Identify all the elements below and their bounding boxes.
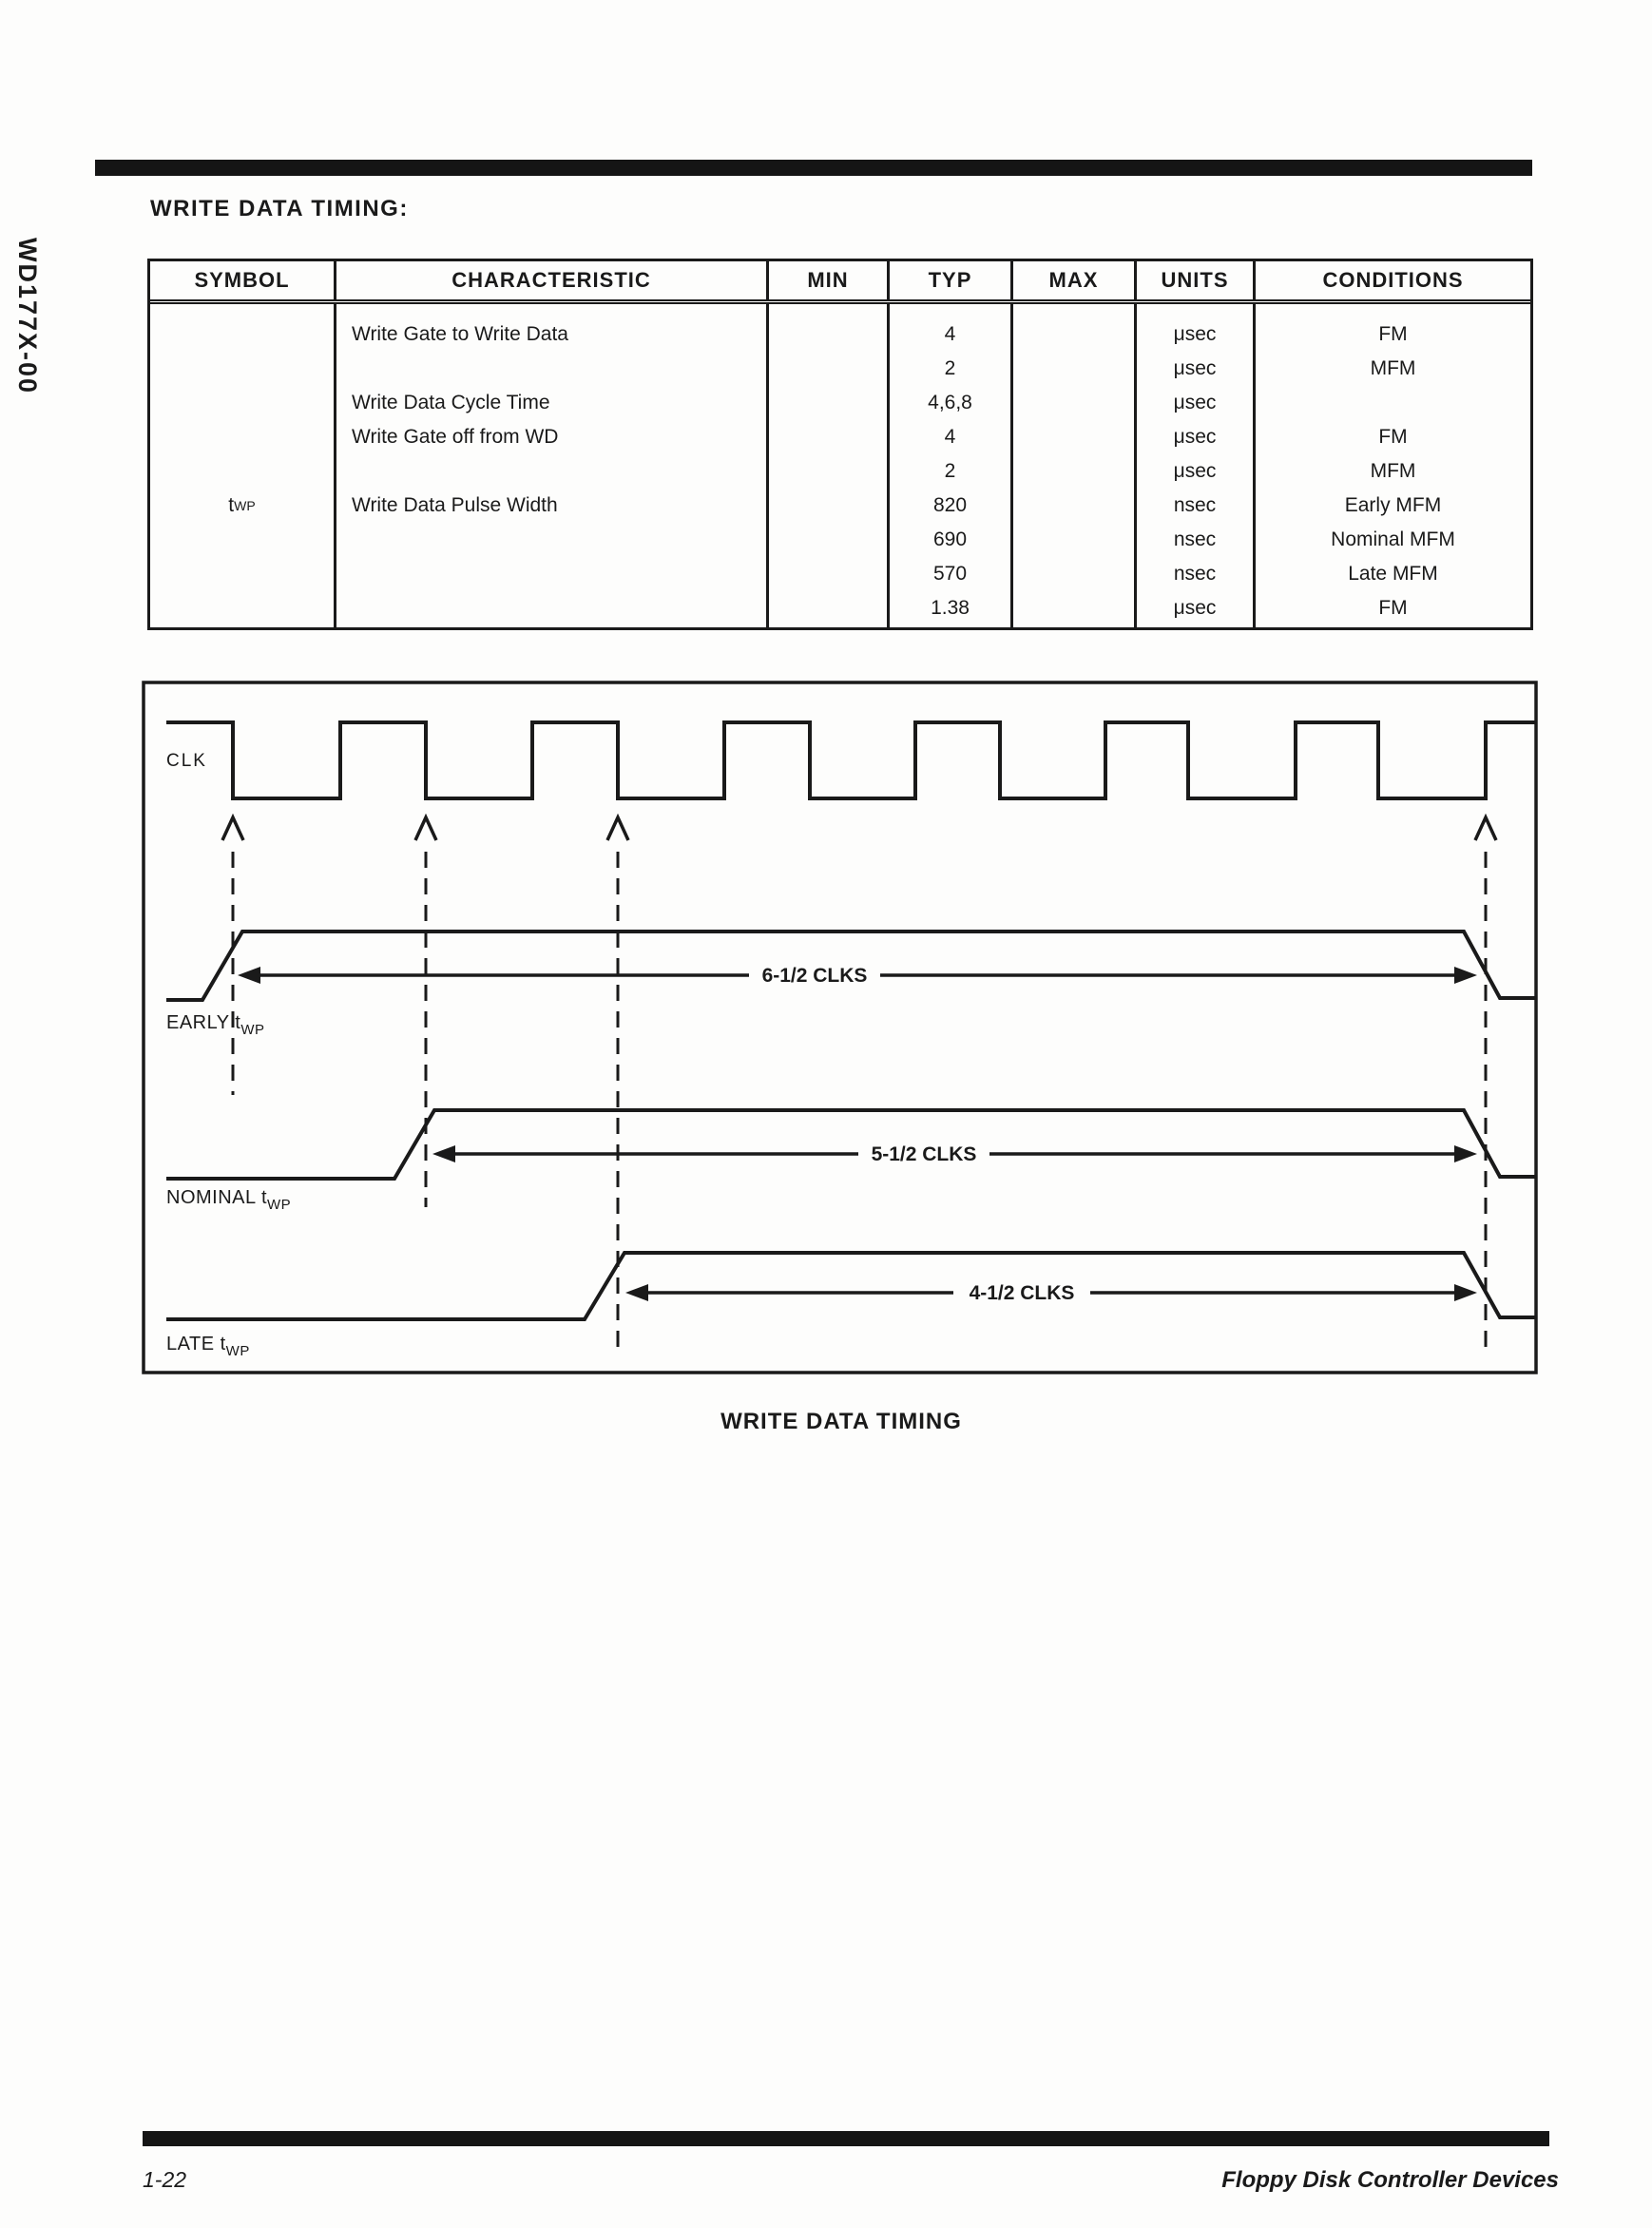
table-cell: μsec <box>1137 420 1253 454</box>
table-cell <box>769 317 887 352</box>
table-cell <box>1013 454 1134 489</box>
nominal-duration-label: 5-1/2 CLKS <box>872 1143 977 1165</box>
clock-sample-caret <box>222 817 243 840</box>
table-cell: μsec <box>1137 591 1253 625</box>
table-cell <box>150 317 334 352</box>
table-cell: nsec <box>1137 489 1253 523</box>
table-cell: FM <box>1256 317 1530 352</box>
column-min <box>766 304 887 627</box>
label-prefix: NOMINAL t <box>166 1187 267 1208</box>
table-cell <box>1013 352 1134 386</box>
table-cell: Late MFM <box>1256 557 1530 591</box>
table-cell <box>336 591 766 625</box>
clk-label: CLK <box>166 751 207 771</box>
table-body: tWP Write Gate to Write Data Write Data … <box>150 304 1530 627</box>
table-cell <box>150 557 334 591</box>
footer-title: Floppy Disk Controller Devices <box>1221 2167 1559 2194</box>
table-cell: nsec <box>1137 557 1253 591</box>
table-cell <box>769 352 887 386</box>
table-cell <box>336 557 766 591</box>
arrowhead-right <box>1454 1145 1477 1162</box>
table-cell: FM <box>1256 420 1530 454</box>
table-cell: Write Gate to Write Data <box>336 317 766 352</box>
table-cell <box>769 489 887 523</box>
label-prefix: LATE t <box>166 1334 226 1354</box>
table-cell: 2 <box>890 454 1010 489</box>
clock-sample-caret <box>1475 817 1496 840</box>
table-cell: μsec <box>1137 317 1253 352</box>
late-duration-label: 4-1/2 CLKS <box>970 1282 1075 1304</box>
table-cell: 690 <box>890 523 1010 557</box>
arrowhead-right <box>1454 967 1477 984</box>
table-cell <box>769 591 887 625</box>
table-cell <box>336 523 766 557</box>
table-cell <box>1013 420 1134 454</box>
arrowhead-left <box>432 1145 455 1162</box>
header-max: MAX <box>1010 261 1134 299</box>
table-cell-symbol-twp: tWP <box>150 489 334 523</box>
table-cell: 4 <box>890 317 1010 352</box>
side-device-label: WD177X-00 <box>12 238 42 394</box>
table-cell: 1.38 <box>890 591 1010 625</box>
header-conditions: CONDITIONS <box>1253 261 1530 299</box>
table-cell <box>769 454 887 489</box>
table-cell: μsec <box>1137 386 1253 420</box>
table-cell: 820 <box>890 489 1010 523</box>
table-header-row: SYMBOL CHARACTERISTIC MIN TYP MAX UNITS … <box>150 261 1530 304</box>
table-cell <box>150 454 334 489</box>
table-cell <box>1013 523 1134 557</box>
table-cell <box>769 420 887 454</box>
table-cell: FM <box>1256 591 1530 625</box>
table-cell: MFM <box>1256 352 1530 386</box>
column-units: μsec μsec μsec μsec μsec nsec nsec nsec … <box>1134 304 1253 627</box>
clock-sample-caret <box>607 817 628 840</box>
clock-sample-caret <box>415 817 436 840</box>
top-rule <box>95 160 1532 176</box>
table-cell: Write Data Cycle Time <box>336 386 766 420</box>
table-cell <box>1013 557 1134 591</box>
bottom-rule <box>143 2131 1549 2146</box>
column-characteristic: Write Gate to Write Data Write Data Cycl… <box>334 304 766 627</box>
arrowhead-right <box>1454 1284 1477 1301</box>
column-typ: 4 2 4,6,8 4 2 820 690 570 1.38 <box>887 304 1010 627</box>
header-typ: TYP <box>887 261 1010 299</box>
table-cell: μsec <box>1137 454 1253 489</box>
label-subscript: WP <box>240 1022 264 1038</box>
header-units: UNITS <box>1134 261 1253 299</box>
column-symbol: tWP <box>150 304 334 627</box>
table-cell <box>150 352 334 386</box>
label-subscript: WP <box>226 1343 250 1359</box>
late-twp-label: LATE tWP <box>166 1334 250 1359</box>
table-cell: nsec <box>1137 523 1253 557</box>
table-cell: Early MFM <box>1256 489 1530 523</box>
header-min: MIN <box>766 261 887 299</box>
table-cell: 4,6,8 <box>890 386 1010 420</box>
table-cell <box>150 386 334 420</box>
table-cell <box>769 523 887 557</box>
table-cell: μsec <box>1137 352 1253 386</box>
column-conditions: FM MFM FM MFM Early MFM Nominal MFM Late… <box>1253 304 1530 627</box>
early-twp-label: EARLY tWP <box>166 1012 265 1038</box>
table-cell <box>336 352 766 386</box>
table-cell: 2 <box>890 352 1010 386</box>
table-cell: Write Gate off from WD <box>336 420 766 454</box>
label-prefix: EARLY t <box>166 1012 240 1033</box>
arrowhead-left <box>625 1284 648 1301</box>
table-cell <box>1013 317 1134 352</box>
table-cell: Nominal MFM <box>1256 523 1530 557</box>
table-cell <box>769 386 887 420</box>
arrowhead-left <box>238 967 260 984</box>
table-cell <box>1013 386 1134 420</box>
table-cell <box>150 420 334 454</box>
header-symbol: SYMBOL <box>150 261 334 299</box>
timing-spec-table: SYMBOL CHARACTERISTIC MIN TYP MAX UNITS … <box>147 259 1533 630</box>
label-subscript: WP <box>267 1197 291 1213</box>
table-cell <box>150 591 334 625</box>
table-cell: 4 <box>890 420 1010 454</box>
table-cell <box>336 454 766 489</box>
table-cell <box>150 523 334 557</box>
table-cell: 570 <box>890 557 1010 591</box>
nominal-twp-label: NOMINAL tWP <box>166 1187 291 1213</box>
late-twp-waveform <box>166 1253 1536 1319</box>
column-max <box>1010 304 1134 627</box>
clock-waveform <box>166 722 1536 798</box>
section-heading: WRITE DATA TIMING: <box>150 196 409 222</box>
page-number: 1-22 <box>143 2167 186 2193</box>
early-duration-label: 6-1/2 CLKS <box>762 965 868 987</box>
table-cell: MFM <box>1256 454 1530 489</box>
timing-diagram: CLK 6-1/2 CLKS EARLY tWP 5-1/2 CLKS NOMI… <box>138 675 1545 1380</box>
nominal-twp-waveform <box>166 1110 1536 1179</box>
header-characteristic: CHARACTERISTIC <box>334 261 766 299</box>
table-cell: Write Data Pulse Width <box>336 489 766 523</box>
table-cell <box>1013 489 1134 523</box>
page-footer: 1-22 Floppy Disk Controller Devices <box>143 2167 1559 2194</box>
diagram-border <box>144 682 1536 1373</box>
table-cell <box>769 557 887 591</box>
datasheet-page: WD177X-00 WRITE DATA TIMING: SYMBOL CHAR… <box>0 0 1652 2228</box>
figure-caption: WRITE DATA TIMING <box>143 1409 1540 1435</box>
symbol-subscript: WP <box>234 499 256 512</box>
table-cell <box>1013 591 1134 625</box>
table-cell <box>1256 386 1530 420</box>
